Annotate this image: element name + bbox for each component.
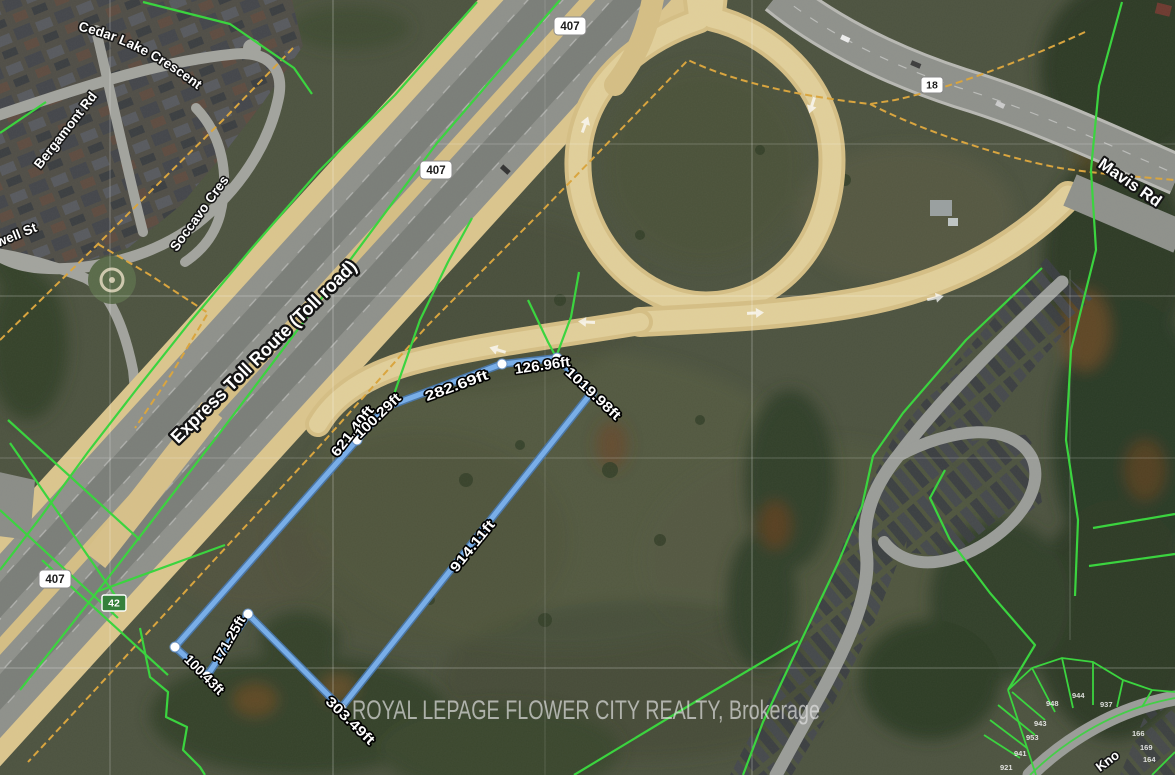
shield-407-top: 407 <box>554 17 586 35</box>
lot-number: 166 <box>1132 729 1145 738</box>
svg-text:407: 407 <box>45 574 64 586</box>
lot-number: 921 <box>1000 763 1013 772</box>
lot-number: 169 <box>1140 743 1153 752</box>
svg-text:42: 42 <box>108 598 120 610</box>
lot-number: 937 <box>1100 700 1113 709</box>
lot-number: 164 <box>1143 755 1156 764</box>
lot-number: 944 <box>1072 691 1085 700</box>
lot-number: 943 <box>1034 719 1047 728</box>
brokerage-watermark: ROYAL LEPAGE FLOWER CITY REALTY, Brokera… <box>352 695 820 725</box>
shield-18: 18 <box>921 77 943 93</box>
svg-text:407: 407 <box>426 165 445 177</box>
shield-407-bottom: 407 <box>39 570 71 588</box>
svg-text:18: 18 <box>926 80 938 92</box>
shield-42-exit: 42 <box>102 595 126 611</box>
lot-number: 953 <box>1026 733 1039 742</box>
lot-number: 941 <box>1014 749 1027 758</box>
listing-map-screenshot: 407 407 407 18 42 Express Toll Route (To… <box>0 0 1175 775</box>
shield-407-mid: 407 <box>420 161 452 179</box>
lot-number: 948 <box>1046 699 1059 708</box>
satellite-map[interactable]: 407 407 407 18 42 Express Toll Route (To… <box>0 0 1175 775</box>
svg-text:407: 407 <box>560 21 579 33</box>
